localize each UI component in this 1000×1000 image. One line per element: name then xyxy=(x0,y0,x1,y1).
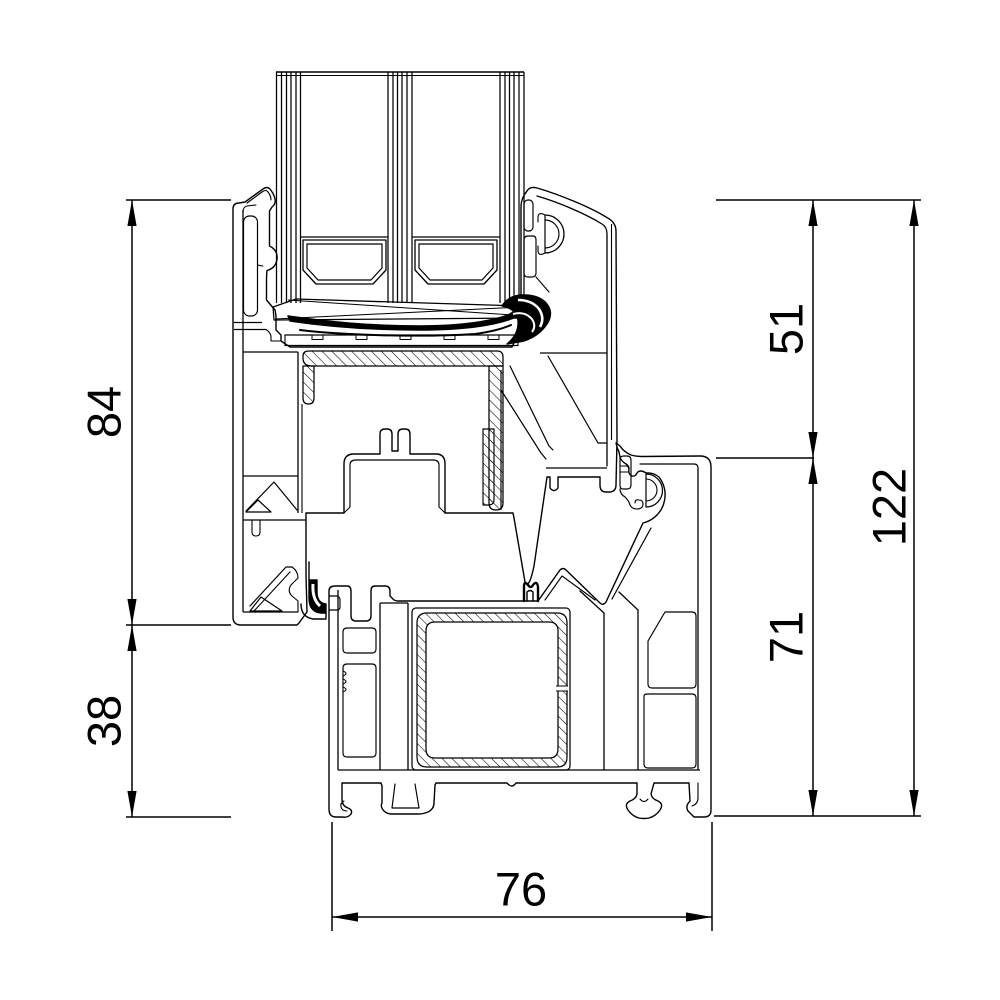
svg-text:76: 76 xyxy=(495,863,547,916)
svg-text:38: 38 xyxy=(78,695,131,747)
svg-text:51: 51 xyxy=(760,303,813,355)
svg-text:71: 71 xyxy=(760,611,813,663)
svg-text:122: 122 xyxy=(863,468,916,546)
svg-text:84: 84 xyxy=(78,386,131,438)
